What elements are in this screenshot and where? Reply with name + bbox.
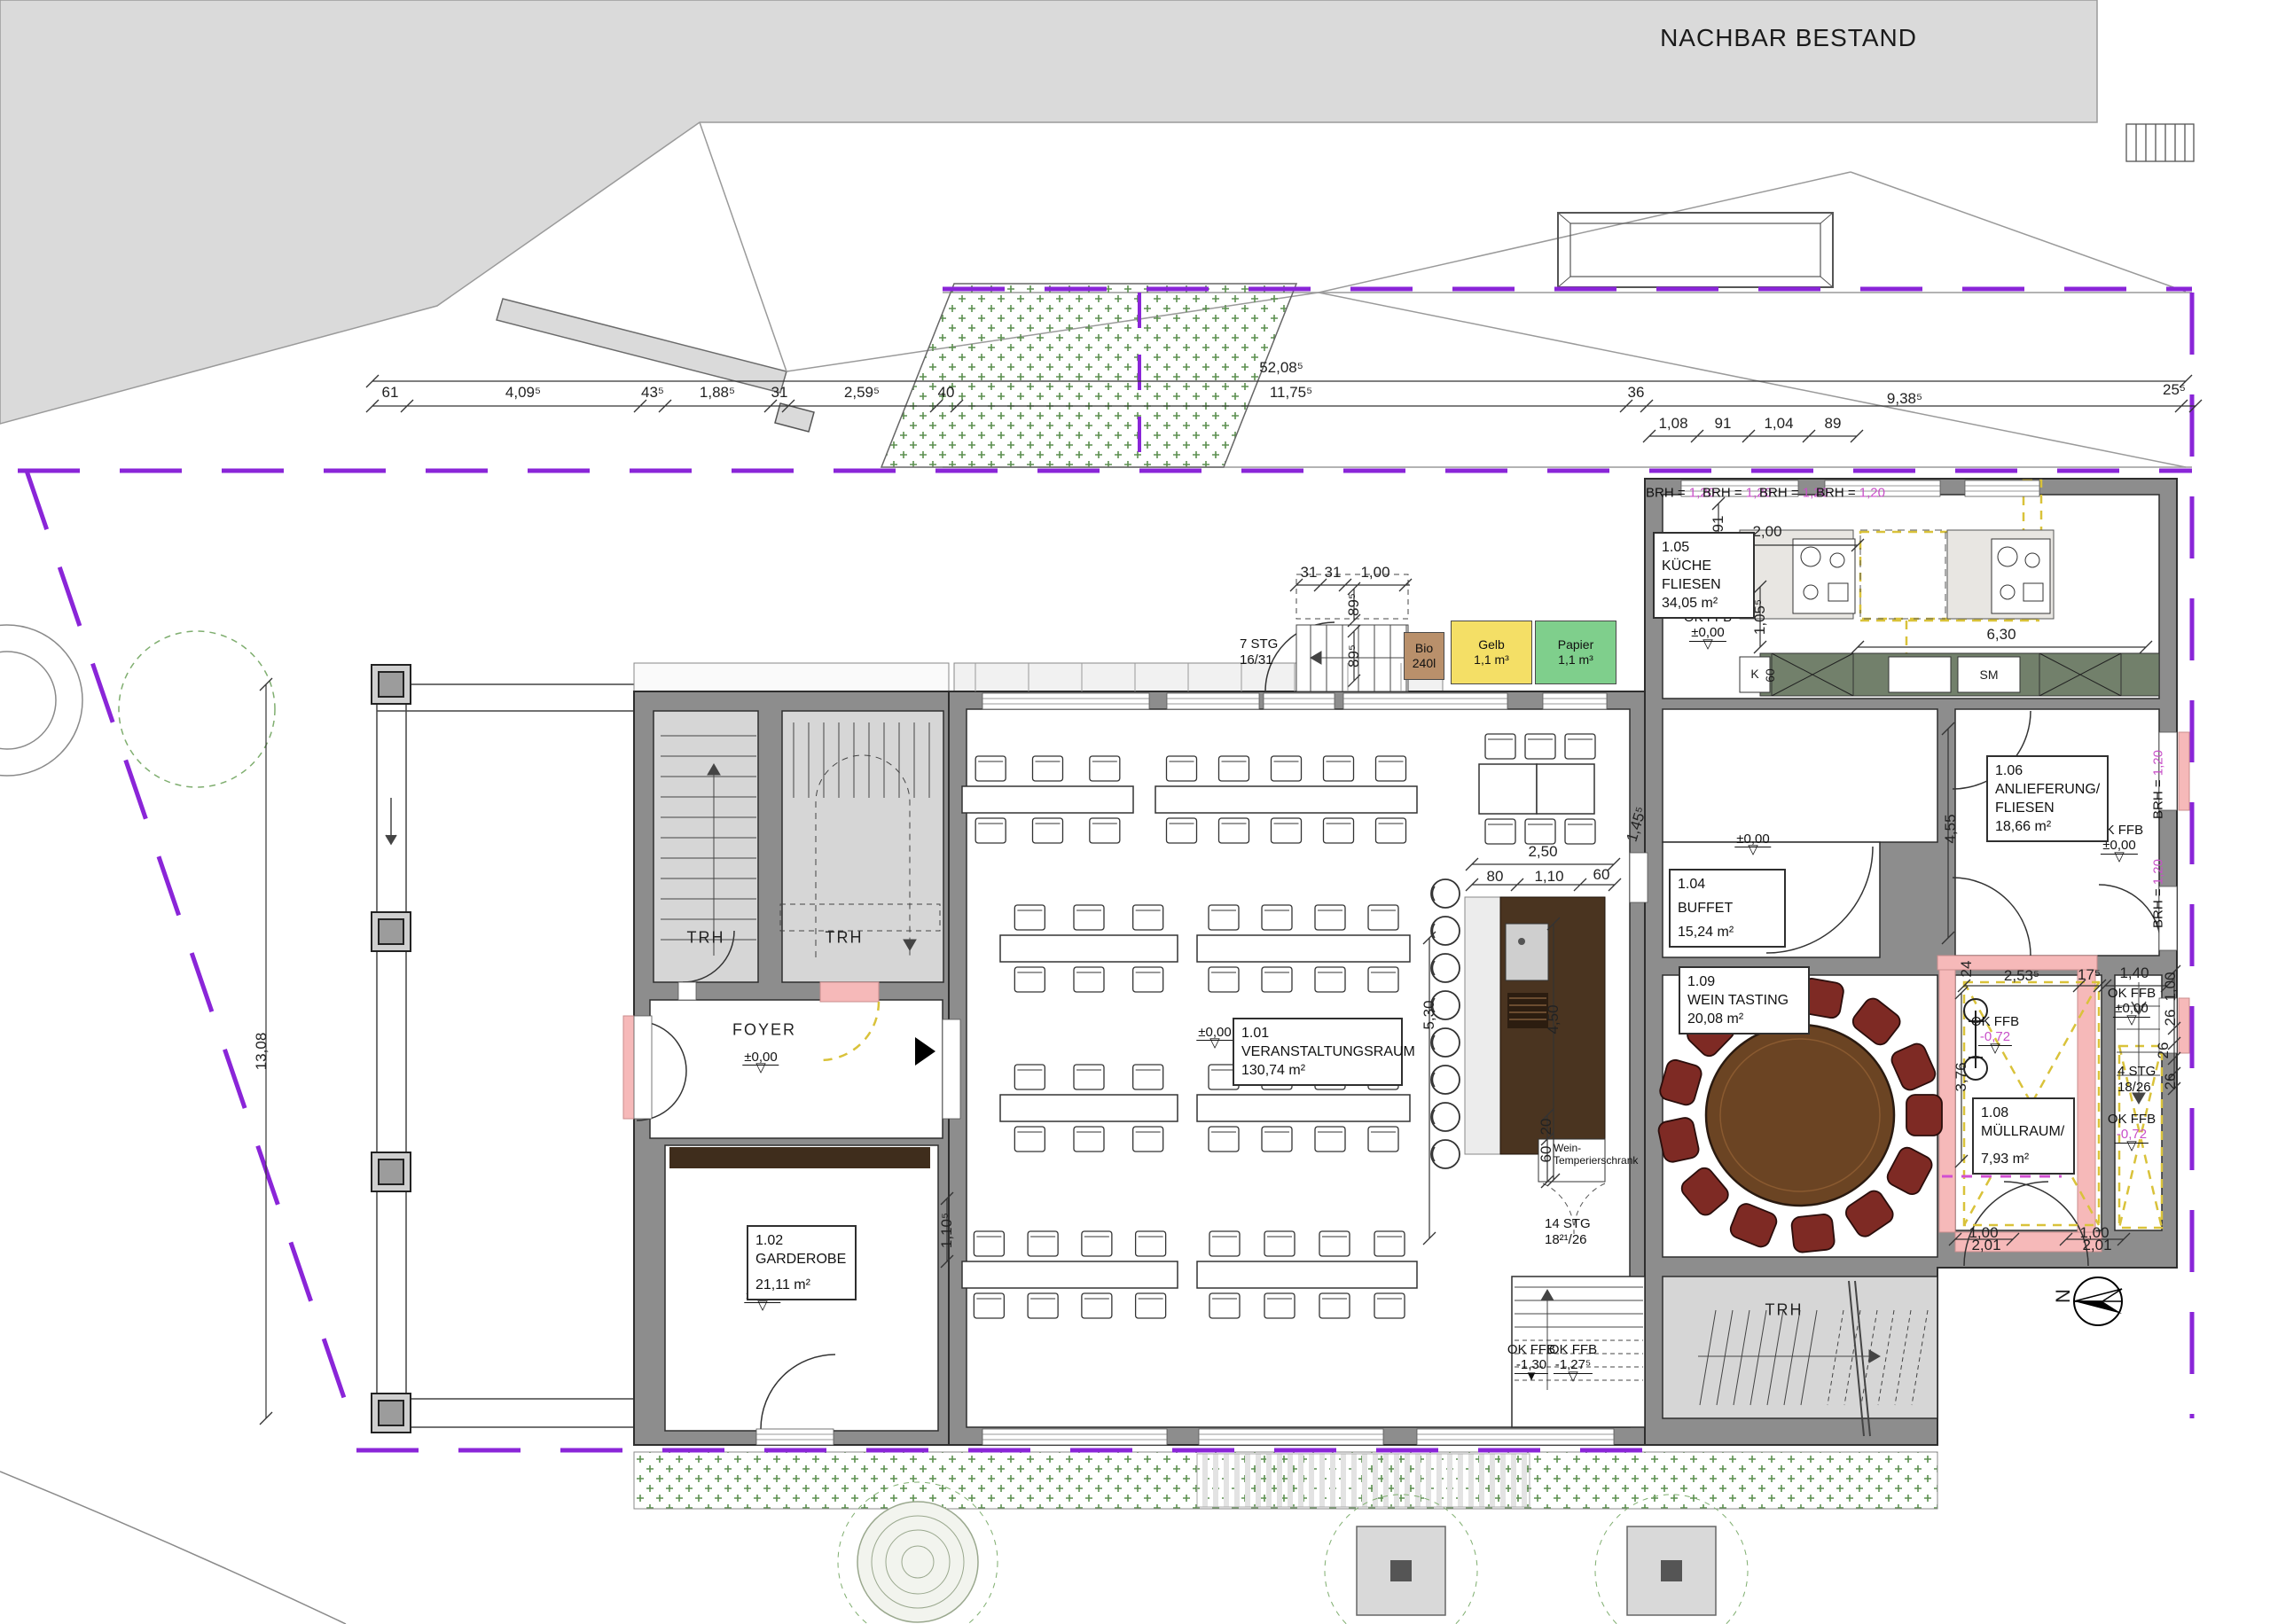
brh-annotation: BRH = 1,20 [2151,859,2166,928]
dimension-label: 40 [938,384,955,402]
dimension-label: 13,08 [253,1033,270,1071]
room-label-anlieferung: 1.06ANLIEFERUNG/ FLIESEN18,66 m² [1986,755,2109,842]
room-label-veranstaltungsraum: 1.01VERANSTALTUNGSRAUM130,74 m² [1233,1018,1403,1086]
ladder-symbol [2126,124,2194,161]
walkway-strip [634,663,949,691]
dimension-label: 60 [1538,1146,1555,1163]
level-marker: OK FFB-1,27⁵▽ [1549,1342,1597,1380]
level-marker: ±0,00▽ [1734,832,1771,854]
floor-plan-drawing [0,0,2270,1624]
dimension-label: 1,08 [1658,415,1687,433]
waste-bin-bio: Bio240l [1404,632,1444,680]
dimension-label: 2,50 [1528,843,1557,861]
kitchen-code-k: K [1750,667,1758,681]
tree-outline [119,631,275,787]
level-marker: OK FFB±0,00▽ [2108,986,2156,1024]
zone-label-foyer: FOYER [732,1021,796,1040]
dimension-label: 2,01 [1971,1237,2000,1254]
dimension-label: 5,30 [1421,1000,1438,1029]
wardrobe [669,1147,930,1168]
site-features [0,625,346,1624]
room-label-muellraum: 1.08MÜLLRAUM/7,93 m² [1972,1097,2075,1175]
dimension-label: 26 [2162,1010,2180,1027]
level-marker: OK FFB-0,72▽ [2108,1112,2156,1150]
planter [1325,1495,1748,1624]
dimension-label: 61 [382,384,399,402]
dimension-label: 80 [1487,868,1504,886]
dimension-label: 2,53⁵ [2004,967,2039,985]
dimension-label: 20 [1538,1119,1555,1136]
brh-annotation: BRH = 1,20 [1816,486,1885,501]
dimension-label: 89⁵ [1345,644,1363,668]
neighbor-label: NACHBAR BESTAND [1660,24,1917,52]
dimension-label: 60 [1593,866,1610,884]
dimension-label: 31 [1301,564,1318,582]
terrace-paving [1197,1454,1530,1507]
skylight [1558,213,1833,287]
floor-plan-page: NACHBAR BESTAND 1.05KÜCHE FLIESEN34,05 m… [0,0,2270,1624]
room-label-weintasting: 1.09WEIN TASTING20,08 m² [1679,966,1810,1035]
dimension-label: 36 [1628,384,1645,402]
dimension-label: 2,01 [2082,1237,2111,1254]
dimension-label: 4,50 [1545,1004,1562,1034]
dimension-label: 31 [1325,564,1342,582]
dimension-label: 4,55 [1942,814,1960,843]
zone-label-trh-1: TRH [687,929,725,948]
dimension-label: 89⁵ [1345,593,1363,616]
level-marker: ±0,00▽ [1196,1025,1233,1047]
dimension-label: 43⁵ [641,384,664,402]
zone-label-trh-2: TRH [826,929,864,948]
room-label-kueche: 1.05KÜCHE FLIESEN34,05 m² [1653,532,1755,619]
dimension-label: 89 [1825,415,1842,433]
dimension-label: 52,08⁵ [1259,359,1303,377]
dimension-label: 1,10⁵ [938,1213,956,1248]
dimension-label: 17⁵ [2078,966,2101,984]
dimension-label: 1,40 [2119,964,2149,982]
dimension-label: 26 [2155,1042,2172,1059]
dimension-label: 3,76 [1953,1062,1970,1091]
stair-label-4stg: 4 STG18/26 [2117,1064,2156,1096]
level-marker: ±0,00▽ [742,1050,779,1072]
waste-bin-gelb: Gelb1,1 m³ [1451,621,1532,684]
dimension-label: 1,10 [1534,868,1563,886]
zone-label-trh-3: TRH [1765,1301,1804,1320]
waste-bin-papier: Papier1,1 m³ [1535,621,1616,684]
dimension-label: 2,00 [1752,523,1781,541]
dimension-label: 1,04 [1764,415,1793,433]
wine-cabinet-label: Wein- Temperierschrank [1554,1142,1638,1167]
dimension-label: 31 [771,384,788,402]
stair-label-14stg: 14 STG18²¹/26 [1545,1216,1591,1248]
brh-annotation: BRH = 1,20 [2151,750,2166,819]
dimension-label: 1,00 [2162,972,2180,1001]
compass-label: N [2052,1289,2075,1303]
dimension-label: 1,00 [1360,564,1389,582]
dimension-label: 11,75⁵ [1270,384,1312,402]
planting-area [881,284,1296,467]
north-arrow [2074,1277,2122,1325]
dimension-label: 25⁵ [2163,381,2186,399]
kitchen-code-60: 60 [1763,668,1777,683]
stair-label-7stg: 7 STG16/31 [1240,636,1278,668]
dimension-label: 26 [2162,1074,2180,1090]
kitchen-code-sm: SM [1980,668,1999,682]
dimension-label: 24 [1958,961,1976,978]
dimension-label: 9,38⁵ [1887,390,1922,408]
dimension-label: 6,30 [1986,626,2016,644]
dimension-label: 1,88⁵ [700,384,735,402]
dimension-label: 91 [1715,415,1732,433]
room-label-buffet: 1.04BUFFET15,24 m² [1669,869,1786,948]
room-label-garderobe: 1.02GARDEROBE21,11 m² [747,1225,857,1300]
dimension-label: 4,09⁵ [505,384,541,402]
level-marker: OK FFB-0,72▽ [1971,1014,2019,1052]
dimension-label: 91 [1710,516,1727,533]
dimension-label: 2,59⁵ [844,384,880,402]
colonnade [377,683,634,1429]
